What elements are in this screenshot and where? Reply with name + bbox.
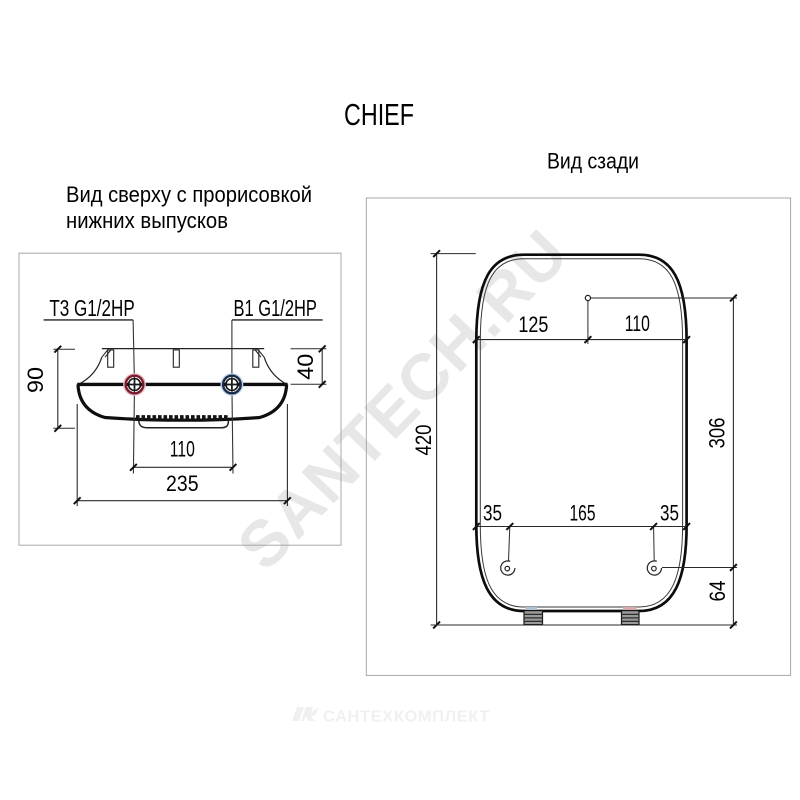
svg-text:110: 110 bbox=[170, 437, 195, 462]
svg-text:Вид сзади: Вид сзади bbox=[547, 149, 639, 174]
svg-text:CHIEF: CHIEF bbox=[344, 97, 414, 132]
svg-text:Т3 G1/2НР: Т3 G1/2НР bbox=[49, 295, 134, 321]
svg-text:нижних выпусков: нижних выпусков bbox=[66, 208, 228, 233]
svg-text:САНТЕХКОМПЛЕКТ: САНТЕХКОМПЛЕКТ bbox=[323, 709, 490, 726]
svg-text:125: 125 bbox=[518, 312, 548, 337]
svg-text:110: 110 bbox=[625, 311, 650, 336]
svg-text:В1 G1/2НР: В1 G1/2НР bbox=[234, 295, 317, 321]
svg-text:64: 64 bbox=[705, 581, 730, 602]
svg-text:40: 40 bbox=[293, 354, 318, 380]
svg-text:Вид сверху с прорисовкой: Вид сверху с прорисовкой bbox=[66, 182, 312, 207]
svg-text:165: 165 bbox=[570, 501, 596, 526]
svg-text:90: 90 bbox=[23, 367, 48, 393]
svg-text:35: 35 bbox=[483, 501, 502, 526]
svg-text:420: 420 bbox=[411, 425, 436, 456]
svg-text:235: 235 bbox=[166, 471, 199, 496]
svg-text:306: 306 bbox=[705, 418, 730, 449]
svg-text:35: 35 bbox=[660, 501, 679, 526]
